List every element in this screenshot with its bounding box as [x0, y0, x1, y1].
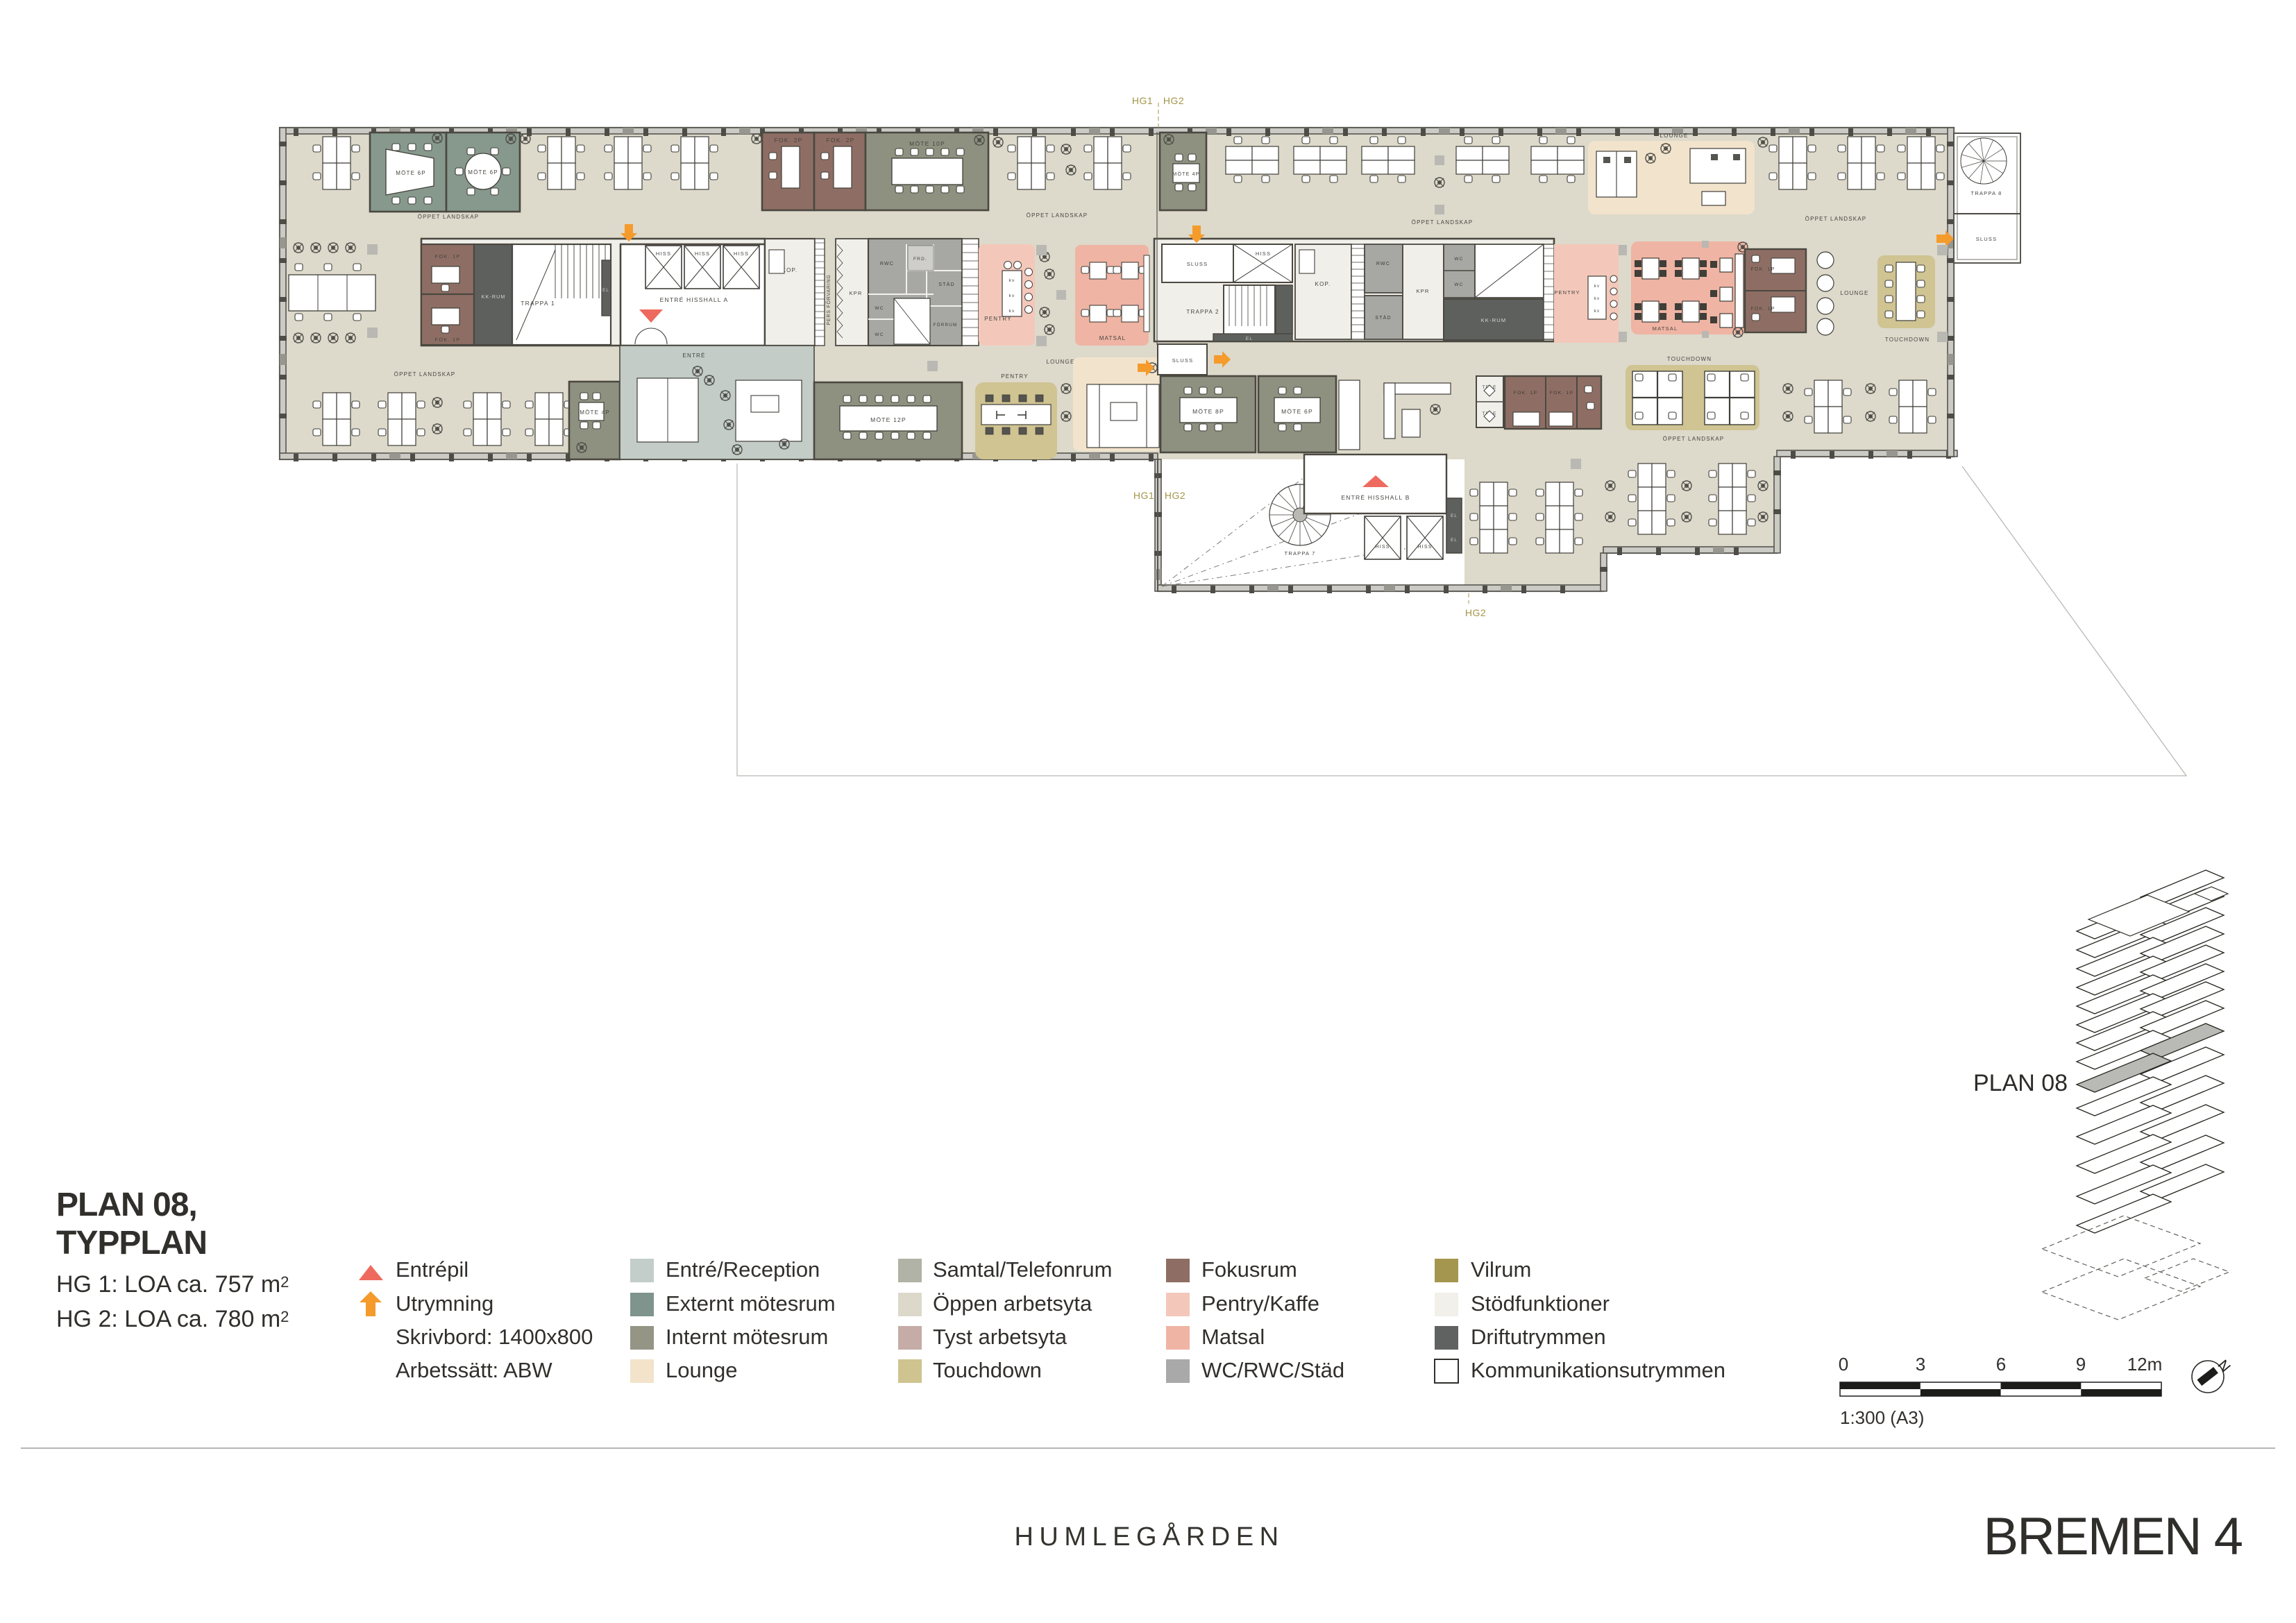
- svg-text:SLUSS: SLUSS: [1187, 261, 1208, 267]
- svg-text:WC/RWC/Städ: WC/RWC/Städ: [1201, 1358, 1344, 1382]
- svg-text:Tyst arbetsyta: Tyst arbetsyta: [933, 1325, 1067, 1349]
- svg-text:FOK. 2P: FOK. 2P: [827, 137, 855, 144]
- svg-text:ÖPPET LANDSKAP: ÖPPET LANDSKAP: [418, 214, 480, 220]
- svg-text:kv: kv: [1594, 309, 1600, 314]
- svg-text:RWC: RWC: [880, 262, 894, 266]
- svg-text:FOK. 1P: FOK. 1P: [434, 253, 460, 260]
- svg-text:HG 2: LOA ca. 780 m2: HG 2: LOA ca. 780 m2: [56, 1306, 289, 1332]
- svg-text:kv: kv: [1594, 284, 1600, 289]
- svg-text:6: 6: [1996, 1354, 2006, 1375]
- svg-text:LOUNGE: LOUNGE: [1047, 359, 1075, 365]
- svg-text:0: 0: [1839, 1354, 1848, 1375]
- svg-text:Arbetssätt: ABW: Arbetssätt: ABW: [396, 1358, 552, 1382]
- svg-text:HISS: HISS: [1417, 545, 1432, 550]
- svg-text:kv: kv: [1594, 297, 1600, 301]
- svg-text:KK-RUM: KK-RUM: [1481, 317, 1507, 323]
- svg-text:KPR: KPR: [1416, 288, 1429, 294]
- svg-text:1:300 (A3): 1:300 (A3): [1840, 1407, 1924, 1428]
- svg-text:Internt mötesrum: Internt mötesrum: [666, 1325, 828, 1349]
- svg-text:TOUCHDOWN: TOUCHDOWN: [1667, 356, 1712, 362]
- svg-text:LOUNGE: LOUNGE: [1841, 290, 1869, 296]
- svg-text:HISS: HISS: [656, 250, 671, 257]
- svg-text:EL: EL: [1246, 337, 1253, 341]
- svg-text:Entré/Reception: Entré/Reception: [666, 1257, 820, 1282]
- svg-text:MÖTE 4P: MÖTE 4P: [1172, 171, 1199, 177]
- svg-text:MATSAL: MATSAL: [1099, 335, 1126, 341]
- svg-text:HISS: HISS: [1256, 250, 1271, 257]
- svg-text:WC: WC: [1454, 257, 1463, 262]
- svg-text:MÖTE 6P: MÖTE 6P: [396, 170, 426, 176]
- svg-text:MÖTE 4P: MÖTE 4P: [580, 409, 610, 416]
- svg-text:Stödfunktioner: Stödfunktioner: [1471, 1291, 1610, 1316]
- svg-text:TOUCHDOWN: TOUCHDOWN: [1885, 337, 1930, 343]
- svg-text:HG2: HG2: [1165, 490, 1185, 501]
- svg-text:Utrymning: Utrymning: [396, 1291, 493, 1316]
- svg-text:PERS FÖRVARING: PERS FÖRVARING: [826, 274, 832, 325]
- svg-text:HG2: HG2: [1465, 607, 1486, 618]
- svg-text:HISS: HISS: [734, 250, 749, 257]
- svg-text:STÄD: STÄD: [1375, 315, 1391, 321]
- svg-text:ENTRÉ HISSHALL A: ENTRÉ HISSHALL A: [660, 296, 729, 303]
- svg-text:KPR: KPR: [849, 290, 862, 296]
- svg-text:FOK. 1P: FOK. 1P: [1750, 307, 1775, 312]
- svg-text:HG1: HG1: [1132, 95, 1153, 106]
- svg-text:SLUSS: SLUSS: [1172, 357, 1194, 364]
- svg-text:ÖPPET LANDSKAP: ÖPPET LANDSKAP: [1027, 212, 1088, 219]
- svg-text:HISS: HISS: [695, 250, 710, 257]
- svg-text:FRD.: FRD.: [913, 257, 927, 262]
- svg-text:kv: kv: [1009, 278, 1015, 283]
- svg-text:HG 1: LOA ca. 757 m2: HG 1: LOA ca. 757 m2: [56, 1271, 289, 1298]
- svg-text:PENTRY: PENTRY: [1001, 373, 1029, 380]
- svg-text:MÖTE 8P: MÖTE 8P: [1192, 408, 1224, 415]
- svg-text:FOK. 1P: FOK. 1P: [1550, 391, 1573, 396]
- svg-text:ÖPPET LANDSKAP: ÖPPET LANDSKAP: [1663, 436, 1725, 442]
- svg-text:HG2: HG2: [1163, 95, 1184, 106]
- svg-text:ÖPPET LANDSKAP: ÖPPET LANDSKAP: [1412, 219, 1474, 226]
- svg-text:Fokusrum: Fokusrum: [1201, 1257, 1297, 1282]
- svg-text:TRAPPA 2: TRAPPA 2: [1186, 309, 1219, 315]
- svg-text:TRAPPA 7: TRAPPA 7: [1285, 550, 1316, 556]
- svg-text:EL: EL: [602, 289, 609, 293]
- svg-text:EL: EL: [1451, 514, 1458, 518]
- svg-text:TRAPPA 1: TRAPPA 1: [521, 300, 555, 307]
- svg-text:WC: WC: [875, 332, 884, 337]
- svg-text:12m: 12m: [2127, 1354, 2163, 1375]
- svg-text:3: 3: [1916, 1354, 1925, 1375]
- svg-text:MÖTE 10P: MÖTE 10P: [909, 140, 945, 147]
- svg-text:MATSAL: MATSAL: [1653, 325, 1678, 332]
- svg-text:EL: EL: [1451, 538, 1458, 543]
- svg-text:TYPPLAN: TYPPLAN: [56, 1225, 207, 1261]
- svg-text:HISS: HISS: [1375, 545, 1390, 550]
- svg-text:ENTRÉ HISSHALL B: ENTRÉ HISSHALL B: [1341, 494, 1410, 501]
- svg-text:HG1: HG1: [1133, 490, 1154, 501]
- svg-text:MÖTE 12P: MÖTE 12P: [870, 416, 906, 423]
- svg-text:WC: WC: [875, 306, 884, 311]
- svg-text:Öppen arbetsyta: Öppen arbetsyta: [933, 1291, 1092, 1316]
- svg-text:Driftutrymmen: Driftutrymmen: [1471, 1325, 1606, 1349]
- svg-text:HUMLEGÅRDEN: HUMLEGÅRDEN: [1014, 1521, 1284, 1552]
- svg-text:Kommunikationsutrymmen: Kommunikationsutrymmen: [1471, 1358, 1725, 1382]
- svg-text:PLAN 08,: PLAN 08,: [56, 1187, 197, 1223]
- svg-text:ENTRÉ: ENTRÉ: [682, 352, 705, 359]
- svg-text:Vilrum: Vilrum: [1471, 1257, 1531, 1282]
- svg-text:Externt mötesrum: Externt mötesrum: [666, 1291, 836, 1316]
- svg-text:Matsal: Matsal: [1201, 1325, 1265, 1349]
- svg-text:FÖRRUM: FÖRRUM: [934, 322, 958, 328]
- svg-text:SLUSS: SLUSS: [1976, 236, 1998, 242]
- svg-text:kv: kv: [1009, 309, 1015, 314]
- svg-text:Pentry/Kaffe: Pentry/Kaffe: [1201, 1291, 1319, 1316]
- svg-text:PLAN 08: PLAN 08: [1973, 1070, 2068, 1096]
- svg-text:PENTRY: PENTRY: [1554, 289, 1580, 296]
- svg-text:kv: kv: [1009, 294, 1015, 298]
- svg-text:FOK. 2P: FOK. 2P: [775, 137, 803, 144]
- svg-text:LOUNGE: LOUNGE: [1660, 133, 1689, 139]
- svg-text:MÖTE 6P: MÖTE 6P: [468, 169, 498, 176]
- svg-text:FOK. 1P: FOK. 1P: [1750, 267, 1775, 272]
- svg-text:9: 9: [2076, 1354, 2086, 1375]
- svg-text:Lounge: Lounge: [666, 1358, 737, 1382]
- svg-text:FOK. 1P: FOK. 1P: [1514, 391, 1537, 396]
- svg-text:BREMEN 4: BREMEN 4: [1983, 1507, 2242, 1566]
- svg-text:KK-RUM: KK-RUM: [482, 295, 506, 300]
- svg-text:FOK. 1P: FOK. 1P: [434, 337, 460, 343]
- svg-text:MÖTE 6P: MÖTE 6P: [1281, 408, 1313, 415]
- svg-text:STÄD: STÄD: [938, 282, 954, 287]
- svg-text:WC: WC: [1454, 282, 1463, 287]
- svg-text:KOP.: KOP.: [1315, 281, 1331, 287]
- svg-text:RWC: RWC: [1376, 262, 1390, 266]
- svg-text:ÖPPET LANDSKAP: ÖPPET LANDSKAP: [1805, 216, 1867, 222]
- svg-text:Entrépil: Entrépil: [396, 1257, 469, 1282]
- svg-text:TRAPPA 8: TRAPPA 8: [1971, 190, 2002, 196]
- svg-text:ÖPPET LANDSKAP: ÖPPET LANDSKAP: [394, 371, 456, 377]
- svg-text:Samtal/Telefonrum: Samtal/Telefonrum: [933, 1257, 1112, 1282]
- svg-text:Skrivbord: 1400x800: Skrivbord: 1400x800: [396, 1325, 593, 1349]
- svg-text:Touchdown: Touchdown: [933, 1358, 1042, 1382]
